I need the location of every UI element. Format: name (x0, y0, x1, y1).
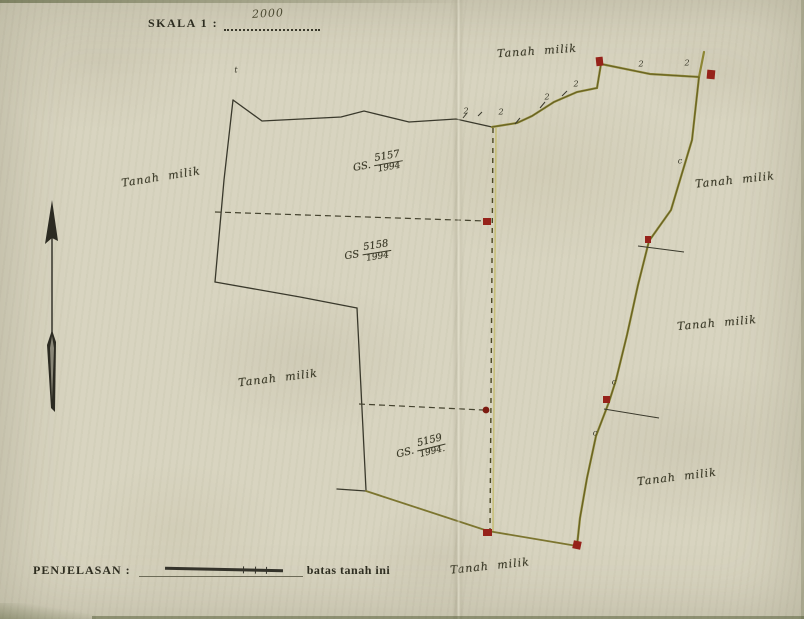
legend-boundary-label: batas tanah ini (307, 563, 391, 578)
point-note: 2 (684, 59, 689, 68)
survey-map-drawing (0, 0, 804, 619)
gs-prefix: GS. (395, 445, 415, 460)
division-dashed-lines (215, 128, 496, 531)
north-arrow-icon (45, 200, 58, 412)
scanned-survey-map-page: SKALA 1 : 2000 (0, 0, 804, 619)
legend-line (139, 561, 303, 577)
gs-prefix: GS. (352, 160, 371, 174)
point-note: 2 (463, 107, 468, 116)
boundary-olive-ink (366, 52, 704, 546)
point-note: c (678, 157, 682, 166)
point-note: 2 (498, 108, 503, 117)
point-note: c (593, 429, 597, 438)
legend: PENJELASAN : batas tanah ini (33, 561, 390, 578)
point-note: 2 (544, 93, 549, 102)
gs-prefix: GS (344, 249, 360, 262)
legend-title: PENJELASAN : (33, 563, 131, 578)
boundary-line-symbol (165, 567, 283, 572)
point-note: 2 (638, 60, 643, 69)
scan-corner-bottom-left (0, 603, 96, 619)
point-note: c (612, 378, 616, 387)
point-note: t (234, 66, 237, 75)
scan-edge-top (0, 0, 470, 3)
point-note: 2 (573, 80, 578, 89)
